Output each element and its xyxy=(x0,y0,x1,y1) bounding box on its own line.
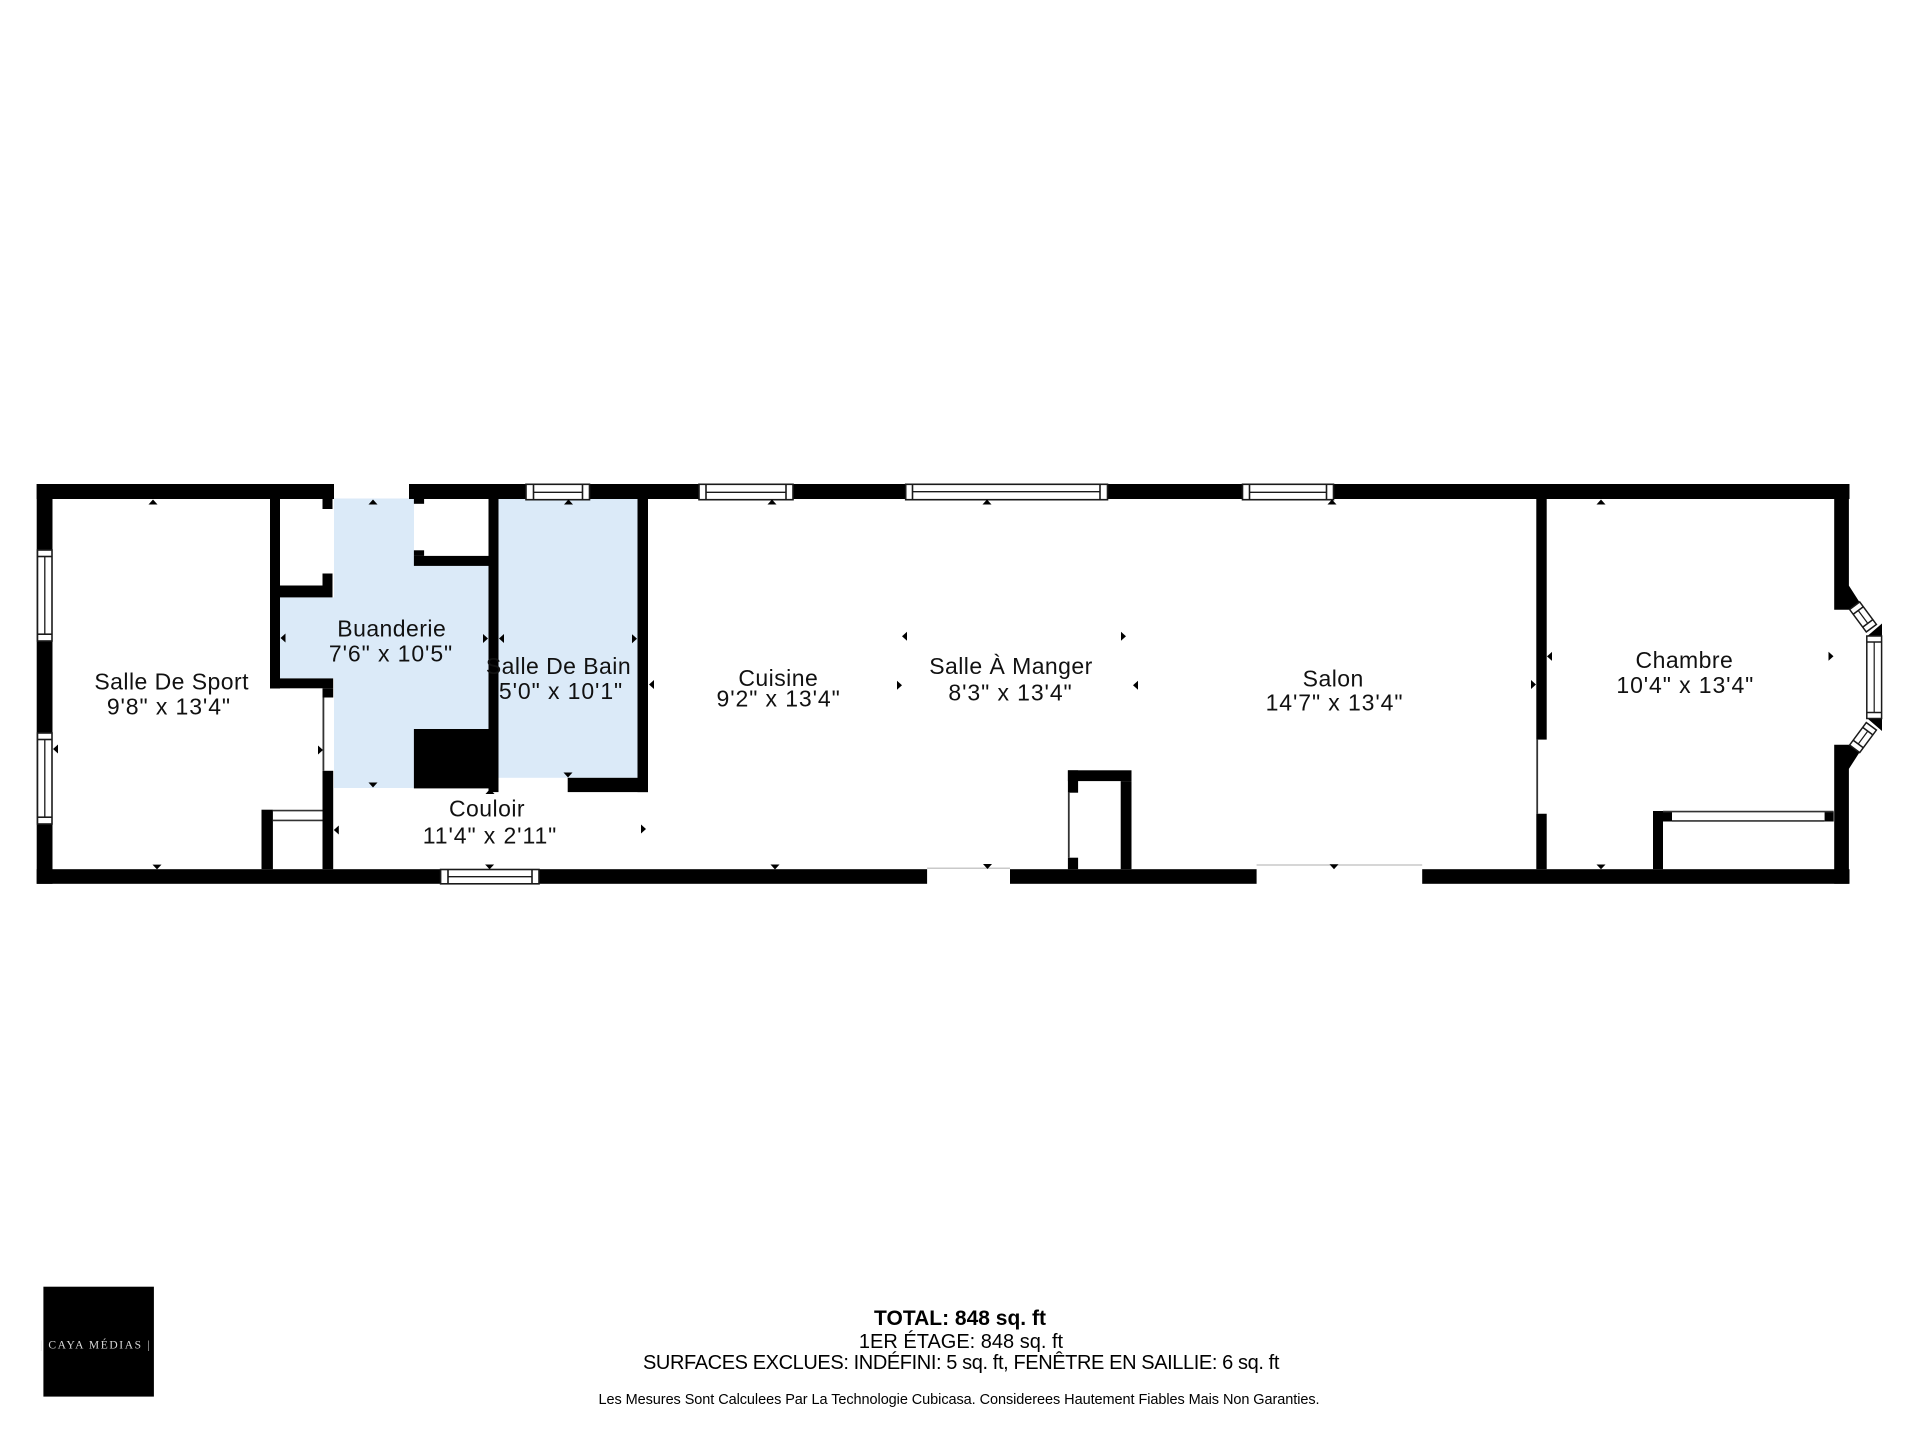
svg-text:Chambre: Chambre xyxy=(1636,647,1734,673)
svg-text:Salon: Salon xyxy=(1303,665,1364,691)
svg-text:Salle De Sport: Salle De Sport xyxy=(94,668,249,694)
svg-text:SURFACES EXCLUES: INDÉFINI: 5: SURFACES EXCLUES: INDÉFINI: 5 sq. ft, FE… xyxy=(643,1351,1280,1374)
svg-text:TOTAL: 848 sq. ft: TOTAL: 848 sq. ft xyxy=(874,1307,1046,1330)
svg-text:9'8" x 13'4": 9'8" x 13'4" xyxy=(107,693,231,719)
svg-text:14'7" x 13'4": 14'7" x 13'4" xyxy=(1266,690,1404,716)
svg-text:Couloir: Couloir xyxy=(449,796,525,822)
svg-text:11'4" x 2'11": 11'4" x 2'11" xyxy=(423,823,557,849)
svg-text:5'0" x 10'1": 5'0" x 10'1" xyxy=(499,678,623,704)
svg-text:| CAYA MÉDIAS |: | CAYA MÉDIAS | xyxy=(40,1337,151,1351)
svg-text:1ER ÉTAGE: 848 sq. ft: 1ER ÉTAGE: 848 sq. ft xyxy=(859,1330,1064,1353)
svg-text:Buanderie: Buanderie xyxy=(337,615,446,641)
svg-text:Salle À Manger: Salle À Manger xyxy=(929,653,1093,679)
svg-text:Salle De Bain: Salle De Bain xyxy=(486,653,631,679)
svg-text:Les Mesures Sont Calculees Par: Les Mesures Sont Calculees Par La Techno… xyxy=(599,1392,1320,1408)
svg-text:10'4" x 13'4": 10'4" x 13'4" xyxy=(1616,672,1754,698)
svg-text:7'6" x 10'5": 7'6" x 10'5" xyxy=(329,640,453,666)
svg-text:9'2" x 13'4": 9'2" x 13'4" xyxy=(717,686,841,712)
svg-text:8'3" x 13'4": 8'3" x 13'4" xyxy=(948,679,1072,705)
